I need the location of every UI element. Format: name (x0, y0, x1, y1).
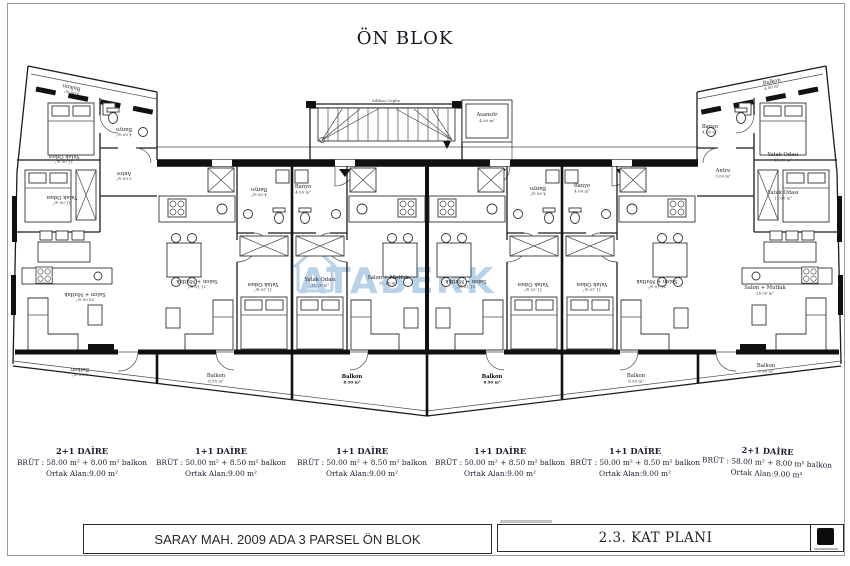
room-area: 26.00 m² (756, 291, 775, 296)
room-area: 4.00 m² (116, 133, 132, 138)
room-area: 11.20 m² (583, 288, 602, 293)
room-label: Banyo (251, 186, 267, 192)
elevator: Asansör 4.00 m² (462, 100, 512, 160)
room-label: Yatak Odası (46, 194, 78, 200)
room-area: 8.50 m² (628, 379, 644, 384)
room-area: 4.00 m² (530, 192, 546, 197)
staircase (306, 100, 462, 160)
room-label: Salon + Mutfak (444, 278, 486, 284)
room-area: 11.00 m² (53, 201, 72, 206)
titleblock-project: SARAY MAH. 2009 ADA 3 PARSEL ÖN BLOK (83, 524, 492, 554)
room-area: 3.00 m² (116, 177, 132, 182)
corner-unit-left (11, 66, 157, 371)
room-area: 4.00 m² (295, 190, 311, 195)
corner-unit-right (697, 66, 843, 371)
room-label: Balkon (70, 366, 89, 372)
room-area: 8.00 m² (758, 369, 774, 374)
room-area: 8.50 m² (343, 380, 360, 385)
floor-plan-svg: ATABERK (0, 0, 850, 566)
room-area: 11.00 m² (774, 158, 793, 163)
sheet-title: 2.3. KAT PLANI (498, 525, 813, 551)
project-title: SARAY MAH. 2009 ADA 3 PARSEL ÖN BLOK (154, 532, 420, 547)
room-label: Banyo (116, 126, 132, 132)
room-area: 26.00 m² (76, 298, 95, 303)
room-label: Banyo (530, 185, 546, 191)
room-label: Yatak Odası (517, 281, 549, 287)
room-area: 11.20 m² (524, 288, 543, 293)
room-area: 31.10 m² (457, 285, 476, 290)
room-label: Salon + Mutfak (175, 278, 217, 284)
unit-2 (157, 166, 292, 370)
facade-label: Silikon Cephe (372, 98, 401, 103)
room-area: 31.10 m² (188, 285, 207, 290)
elevator-area: 4.00 m² (479, 118, 495, 123)
room-area: 31.10 m² (379, 281, 398, 286)
room-label: Salon + Mutfak (635, 278, 677, 284)
room-area: 8.00 m² (72, 373, 88, 378)
room-area: 8.50 m² (208, 379, 224, 384)
room-area: 11.20 m² (311, 283, 330, 288)
drawing-sheet: ÖN BLOK (0, 0, 850, 566)
room-area: 11.00 m² (55, 160, 74, 165)
room-area: 31.10 m² (648, 285, 667, 290)
building-shell (13, 147, 841, 416)
firm-logo-caption (814, 548, 838, 551)
room-area: 4.00 m² (251, 193, 267, 198)
room-area: 11.00 m² (774, 196, 793, 201)
firm-logo (817, 528, 834, 545)
titleblock-sheet: 2.3. KAT PLANI (497, 524, 844, 552)
room-label: Antre (117, 170, 133, 176)
room-label: Yatak Odası (576, 281, 608, 287)
unit-5 (562, 166, 697, 370)
titleblock-small-note (500, 520, 552, 523)
room-area: 3.00 m² (715, 174, 731, 179)
logo-cell (810, 525, 843, 551)
room-label: Salon + Mutfak (63, 291, 105, 297)
room-label: Yatak Odası (247, 281, 279, 287)
room-area: 4.00 m² (702, 130, 718, 135)
room-area: 4.00 m² (574, 189, 590, 194)
room-area: 8.50 m² (483, 380, 500, 385)
room-label: Yatak Odası (48, 153, 80, 159)
room-area: 11.20 m² (254, 288, 273, 293)
stair-direction-arrow (443, 141, 451, 149)
